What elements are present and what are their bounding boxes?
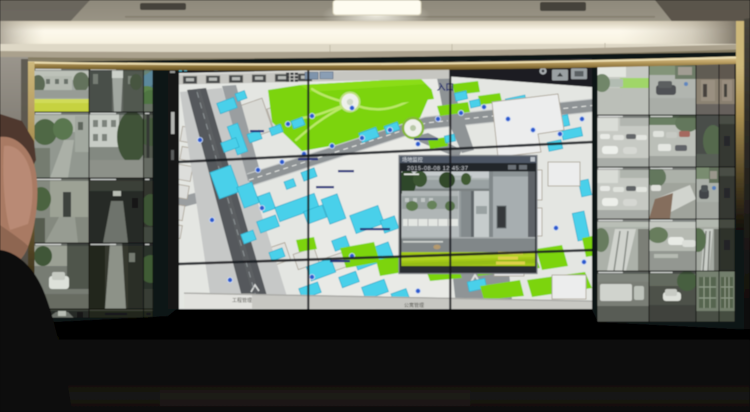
svg-text:场地监控: 场地监控	[402, 156, 423, 164]
svg-text:2015-08-08 12:45:37: 2015-08-08 12:45:37	[407, 166, 468, 172]
svg-text:公寓管理: 公寓管理	[404, 302, 424, 309]
svg-text:工程管理: 工程管理	[232, 297, 252, 304]
